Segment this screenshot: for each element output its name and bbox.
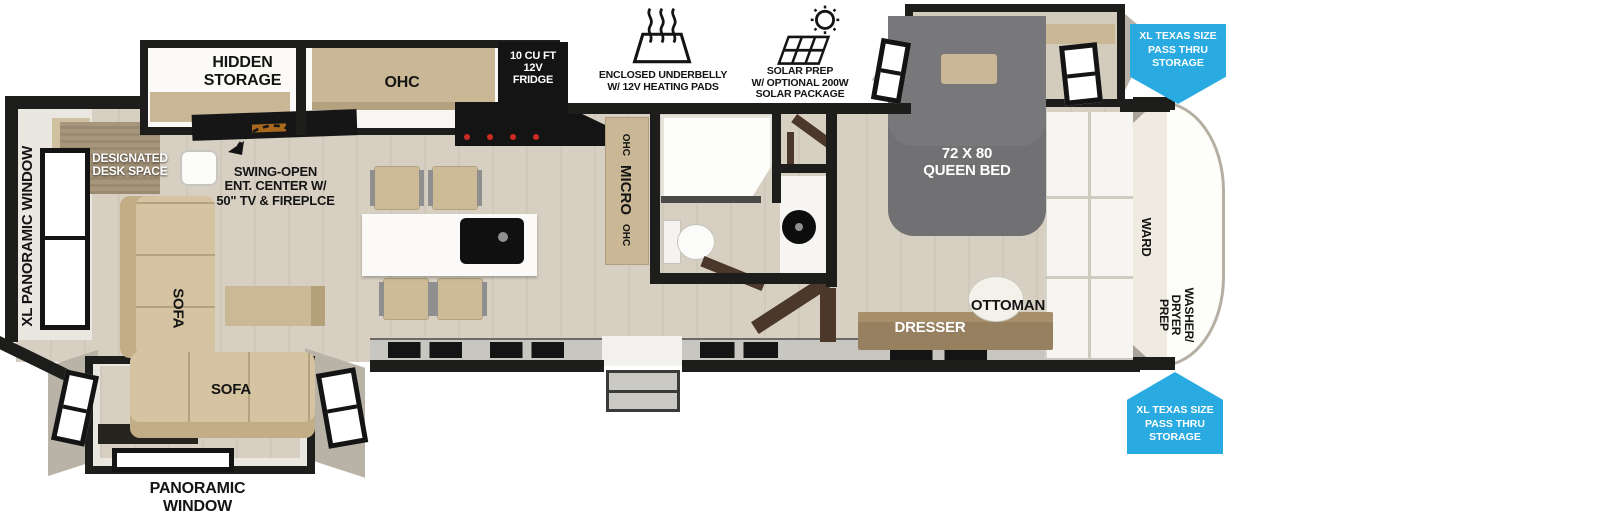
- bathroom-wall-divider-h: [778, 164, 837, 173]
- floorplan-canvas: XL PANORAMIC WINDOW HIDDEN STORAGE OHC 1…: [0, 0, 1600, 517]
- coffee-table: [225, 286, 325, 326]
- bathroom-wall-divider: [772, 113, 781, 203]
- pass-thru-arrow-down: XL TEXAS SIZE PASS THRU STORAGE: [1130, 24, 1226, 104]
- bedroom-step-side: [820, 288, 836, 342]
- ohc-right-label: OHC: [621, 224, 632, 246]
- shower-threshold: [661, 196, 761, 203]
- cap-wall-stub-top: [1133, 97, 1175, 110]
- window-sash: [63, 404, 87, 413]
- bottom-window: [700, 342, 778, 358]
- dresser-label: DRESSER: [880, 320, 980, 337]
- wardrobe-label: WARD: [1139, 207, 1153, 267]
- stool: [432, 166, 478, 210]
- stool: [437, 278, 483, 320]
- ohc-label: OHC: [372, 74, 432, 92]
- fridge-label: 10 CU FT 12V FRIDGE: [498, 50, 568, 86]
- window-sash: [45, 236, 85, 240]
- stool: [383, 278, 429, 320]
- bottom-wall-right: [682, 360, 1140, 372]
- panoramic-window-label: PANORAMIC WINDOW: [125, 480, 270, 515]
- hidden-storage-label: HIDDEN STORAGE: [190, 54, 295, 89]
- bathroom-wall-right: [826, 112, 837, 287]
- xl-panoramic-window-label: XL PANORAMIC WINDOW: [20, 111, 37, 361]
- pillow: [941, 54, 997, 84]
- range-knob: [487, 134, 493, 140]
- pass-thru-arrow-up: XL TEXAS SIZE PASS THRU STORAGE: [1127, 372, 1223, 454]
- pass-thru-bottom-label: XL TEXAS SIZE PASS THRU STORAGE: [1127, 404, 1223, 445]
- sofa-chaise: [120, 196, 215, 358]
- queen-bed-label: 72 X 80 QUEEN BED: [902, 146, 1032, 179]
- range-knob: [510, 134, 516, 140]
- washer-dryer-prep-label: WASHER/ DRYER PREP: [1157, 280, 1195, 350]
- faucet: [498, 232, 508, 242]
- window-sash: [1067, 72, 1095, 79]
- bedroom-window-right: [1059, 42, 1103, 106]
- wardrobe-divider: [1088, 112, 1091, 358]
- ohc-left-label: OHC: [621, 134, 632, 156]
- sofa-chaise-label: SOFA: [169, 278, 186, 338]
- bottom-window: [490, 342, 564, 358]
- swing-open-arrow-icon: [228, 120, 298, 164]
- queen-bed: [888, 16, 1046, 236]
- solar-panel-icon: [768, 4, 844, 68]
- top-wall-left: [5, 96, 145, 109]
- panoramic-window: [112, 448, 234, 472]
- closet-shelf-leg: [787, 132, 794, 166]
- bottom-wall-left: [370, 360, 604, 372]
- ottoman-label: OTTOMAN: [952, 298, 1064, 315]
- pass-thru-top-label: XL TEXAS SIZE PASS THRU STORAGE: [1130, 30, 1226, 71]
- vanity-faucet: [795, 223, 803, 231]
- toilet-bowl: [677, 224, 715, 260]
- bathroom-wall-left: [650, 112, 660, 284]
- underbelly-label: ENCLOSED UNDERBELLY W/ 12V HEATING PADS: [592, 70, 734, 93]
- rear-wall: [5, 96, 18, 342]
- desk-label: DESIGNATED DESK SPACE: [75, 152, 185, 178]
- cap-wall-stub-bottom: [1133, 357, 1175, 370]
- window-sash: [327, 404, 357, 413]
- sofa-main-label: SOFA: [196, 382, 266, 399]
- top-wall-middle: [556, 103, 911, 114]
- entry-steps: [606, 370, 680, 412]
- island-sink: [460, 218, 524, 264]
- solar-label: SOLAR PREP W/ OPTIONAL 200W SOLAR PACKAG…: [733, 66, 867, 101]
- micro-label: MICRO: [618, 165, 635, 215]
- bottom-window: [388, 342, 462, 358]
- bathroom-wall-bottom: [650, 273, 837, 284]
- entry-doorway: [602, 336, 682, 366]
- heating-pads-icon: [630, 5, 694, 69]
- range-knob: [533, 134, 539, 140]
- micro-ohc-labels: OHC MICRO OHC: [603, 115, 649, 265]
- range-knob: [464, 134, 470, 140]
- stool: [374, 166, 420, 210]
- ent-center-label: SWING-OPEN ENT. CENTER W/ 50" TV & FIREP…: [208, 165, 343, 208]
- window-sash: [881, 68, 901, 75]
- shower: [661, 115, 773, 203]
